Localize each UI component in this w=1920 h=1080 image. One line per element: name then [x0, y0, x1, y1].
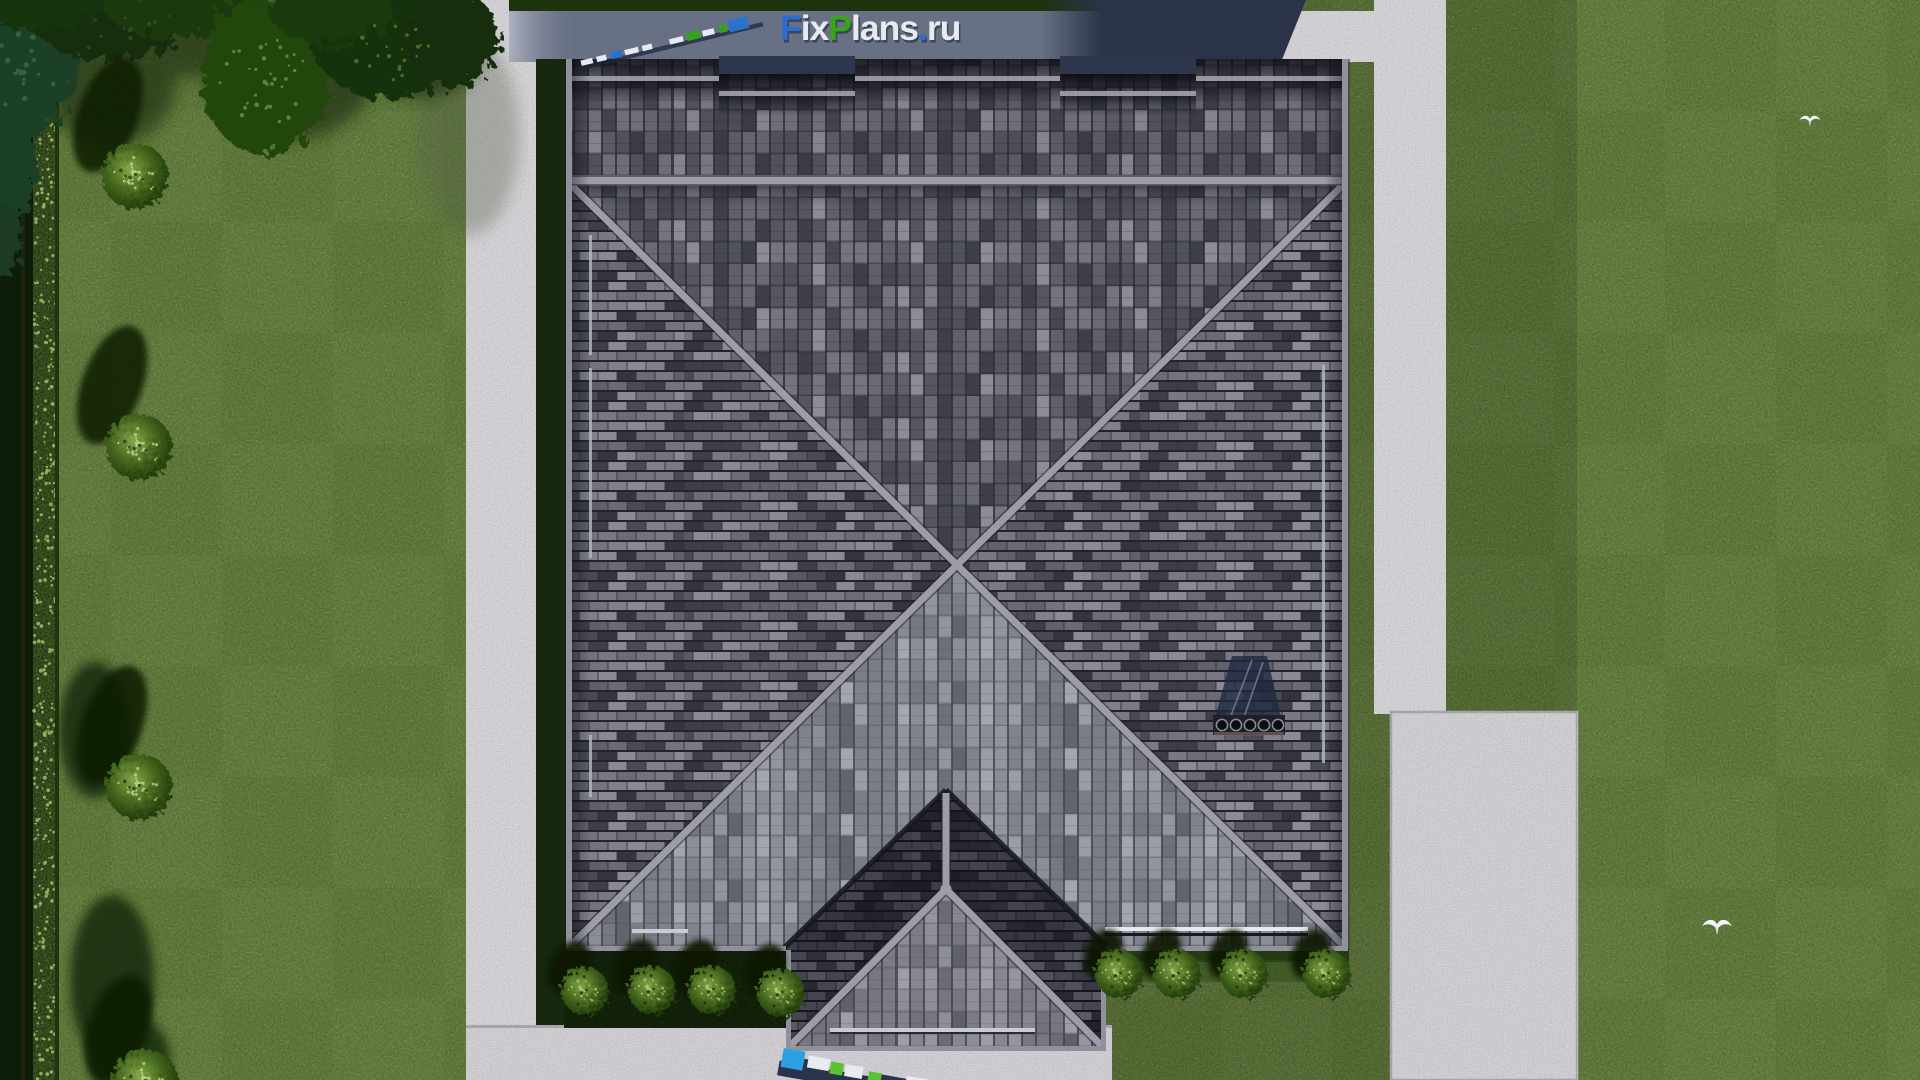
svg-text:FixPlans.ru: FixPlans.ru	[780, 8, 960, 48]
